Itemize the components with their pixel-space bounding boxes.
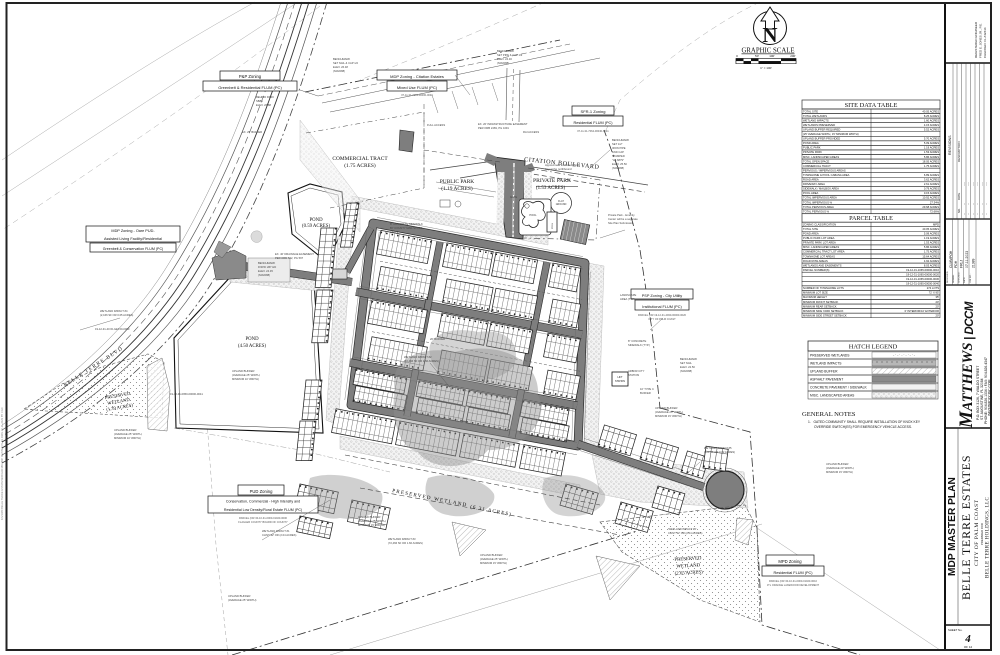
svg-text:19-12-31-40 ID-GET20-0000: 19-12-31-40 ID-GET20-0000 <box>95 327 130 331</box>
svg-text:PARCEL (OR 30-10-31-0000-01020: PARCEL (OR 30-10-31-0000-01020-0000 <box>239 516 288 520</box>
svg-text:--: -- <box>975 203 979 205</box>
svg-text:1.19 ACRES: 1.19 ACRES <box>924 236 939 240</box>
svg-text:JTL ORANGE LAKEWOOD DEVELOPMEN: JTL ORANGE LAKEWOOD DEVELOPMENT <box>767 583 820 587</box>
svg-text:PUD Zoning: PUD Zoning <box>250 489 273 494</box>
svg-text:15.64 ACRES: 15.64 ACRES <box>922 254 939 258</box>
svg-text:(NAVD88): (NAVD88) <box>497 61 509 65</box>
svg-text:Residential FLUM (PC): Residential FLUM (PC) <box>773 571 813 575</box>
svg-text:DESIGNED:: DESIGNED: <box>947 271 949 283</box>
svg-text:Center will be a separate: Center will be a separate <box>608 217 638 221</box>
svg-text:(AVERAGE 25' WIDTH,: (AVERAGE 25' WIDTH, <box>358 519 386 523</box>
svg-text:(4.50 ACRES): (4.50 ACRES) <box>238 344 266 349</box>
svg-text:--: -- <box>962 213 966 215</box>
svg-text:SHEET No.: SHEET No. <box>948 628 963 632</box>
svg-text:ELEV. 25.50: ELEV. 25.50 <box>612 162 627 166</box>
svg-text:0' INTERIOR/10' EXTERIOR: 0' INTERIOR/10' EXTERIOR <box>905 309 939 313</box>
svg-text:DATE:: DATE: <box>963 276 966 283</box>
svg-text:8" CONCRETE SIDEWALK: 8" CONCRETE SIDEWALK <box>390 222 423 226</box>
svg-text:PARCEL TABLE: PARCEL TABLE <box>849 215 893 222</box>
svg-text:19-12-31-1065-00000-0020: 19-12-31-1065-00000-0020 <box>906 272 939 276</box>
svg-text:5.70 ACRES: 5.70 ACRES <box>924 137 939 141</box>
svg-text:MINIMUM 15' WIDTH): MINIMUM 15' WIDTH) <box>480 561 507 565</box>
svg-text:50': 50' <box>755 54 759 58</box>
svg-text:ELEV. 26.88: ELEV. 26.88 <box>256 103 271 107</box>
svg-text:ELEV. 24.46: ELEV. 24.46 <box>497 57 512 61</box>
svg-text:TOTAL IMPERVIOUS %: TOTAL IMPERVIOUS % <box>803 200 833 204</box>
svg-text:200': 200' <box>790 54 796 58</box>
svg-text:5.09 ACRES: 5.09 ACRES <box>924 232 939 236</box>
svg-text:21389: 21389 <box>972 258 976 268</box>
svg-text:(NAVD88): (NAVD88) <box>333 69 345 73</box>
svg-text:TOTAL WETLANDS: TOTAL WETLANDS <box>803 114 827 118</box>
svg-text:0.79 ACRES: 0.79 ACRES <box>924 187 939 191</box>
svg-text:LIFT: LIFT <box>618 376 623 379</box>
svg-text:(AVERAGE 20' WIDTH,: (AVERAGE 20' WIDTH, <box>826 466 854 470</box>
svg-text:1.53 ACRES: 1.53 ACRES <box>924 241 939 245</box>
svg-text:SITE DATA TABLE: SITE DATA TABLE <box>845 102 898 109</box>
svg-text:PDH: PDH <box>954 260 958 268</box>
svg-text:AREA (TYP.): AREA (TYP.) <box>620 297 635 301</box>
svg-text:6.89 ACRES: 6.89 ACRES <box>924 173 939 177</box>
svg-text:Approximate location of Knox: Approximate location of Knox <box>545 163 581 167</box>
svg-text:MINIMUM 15' WIDTH): MINIMUM 15' WIDTH) <box>826 470 853 474</box>
svg-text:MINIMUM SIDE YARD SETBACK: MINIMUM SIDE YARD SETBACK <box>803 309 844 313</box>
svg-text:--: -- <box>980 203 984 205</box>
svg-text:18.05 ACRES: 18.05 ACRES <box>922 159 939 163</box>
svg-text:BELLE TERRE ESTATES: BELLE TERRE ESTATES <box>959 455 973 600</box>
svg-text:RAI ACCESS: RAI ACCESS <box>523 130 539 134</box>
svg-text:1.75 ACRES: 1.75 ACRES <box>924 250 939 254</box>
svg-text:(2,166 SF OR 0.05 ACRES): (2,166 SF OR 0.05 ACRES) <box>100 313 133 317</box>
svg-text:07-11-31-7064-00040-0041: 07-11-31-7064-00040-0041 <box>577 129 609 133</box>
svg-text:PUBLIC PARK: PUBLIC PARK <box>440 179 475 185</box>
svg-text:1.19 ACRES: 1.19 ACRES <box>924 146 939 150</box>
svg-text:----: ---- <box>984 182 988 186</box>
svg-text:Residential FLUM (PC): Residential FLUM (PC) <box>573 121 613 125</box>
svg-text:EX. 25' BUFFER: EX. 25' BUFFER <box>242 130 262 134</box>
svg-text:OVERRIDE SWITCH(ES) FOR EMERGE: OVERRIDE SWITCH(ES) FOR EMERGENCY VEHICL… <box>814 425 912 429</box>
svg-text:BELLE TERRE HOLDINGS, LLC: BELLE TERRE HOLDINGS, LLC <box>986 496 991 578</box>
svg-text:Site Plan Submission: Site Plan Submission <box>608 221 634 225</box>
svg-text:----: ---- <box>966 182 970 186</box>
svg-text:UPLAND BUFFER: UPLAND BUFFER <box>826 462 848 466</box>
svg-text:BENCHMARK: BENCHMARK <box>333 57 350 61</box>
svg-text:0.15 ACRES: 0.15 ACRES <box>924 191 939 195</box>
svg-text:PUBLIC PARK: PUBLIC PARK <box>803 146 821 150</box>
svg-text:40.05 ACRES: 40.05 ACRES <box>922 109 939 113</box>
svg-text:----: ---- <box>980 182 984 186</box>
svg-text:"LB 6879": "LB 6879" <box>612 158 624 162</box>
svg-text:UPLAND BUFFER: UPLAND BUFFER <box>655 406 677 410</box>
svg-text:TOTAL OPEN SPACE: TOTAL OPEN SPACE <box>803 159 830 163</box>
svg-text:5.86 ACRES: 5.86 ACRES <box>924 155 939 159</box>
svg-text:--: -- <box>971 203 975 205</box>
svg-text:UNITS: UNITS <box>390 230 398 234</box>
svg-text:07-11-2023: 07-11-2023 <box>965 251 969 268</box>
svg-text:1" = 100': 1" = 100' <box>760 66 772 70</box>
svg-text:5.86 ACRES: 5.86 ACRES <box>924 245 939 249</box>
svg-text:FRED E. JONES JR., P.E.: FRED E. JONES JR., P.E. <box>979 23 983 58</box>
svg-text:--: -- <box>966 203 970 205</box>
svg-text:TOTAL PERVIOUS AREA: TOTAL PERVIOUS AREA <box>803 205 834 209</box>
svg-text:ARBOR CITY: ARBOR CITY <box>628 369 645 373</box>
svg-text:100': 100' <box>769 54 775 58</box>
svg-text:LANDSCAPE: LANDSCAPE <box>620 293 636 297</box>
svg-text:PREPARED FOR: PREPARED FOR <box>980 523 984 545</box>
svg-text:BENCHMARK: BENCHMARK <box>258 261 275 265</box>
svg-text:'WETLAND IMPACT #6': 'WETLAND IMPACT #6' <box>668 527 697 531</box>
svg-text:--: -- <box>980 213 984 215</box>
svg-text:--: -- <box>984 213 988 215</box>
svg-text:(AVERAGE 25' WIDTH): (AVERAGE 25' WIDTH) <box>228 598 256 602</box>
svg-text:(AVERAGE 25' WIDTH,: (AVERAGE 25' WIDTH, <box>232 373 260 377</box>
svg-text:DRIVEWAY AREA: DRIVEWAY AREA <box>803 182 825 186</box>
svg-text:TOTAL PERVIOUS %: TOTAL PERVIOUS % <box>803 209 830 213</box>
svg-text:TOTAL IMPERVIOUS AREA: TOTAL IMPERVIOUS AREA <box>803 196 837 200</box>
svg-text:MINIMUM 10' WIDTH): MINIMUM 10' WIDTH) <box>232 377 259 381</box>
svg-text:EX. 40' DRAINAGE EASEMENT: EX. 40' DRAINAGE EASEMENT <box>275 252 314 256</box>
svg-text:MINIMUM FRONT SETBACK: MINIMUM FRONT SETBACK <box>803 300 839 304</box>
svg-text:4.15 ACRES: 4.15 ACRES <box>924 123 939 127</box>
svg-text:HATCH LEGEND: HATCH LEGEND <box>849 344 898 351</box>
svg-text:MAXIMUM HEIGHT: MAXIMUM HEIGHT <box>803 295 827 299</box>
svg-text:WETLAND IMPACT #4: WETLAND IMPACT #4 <box>100 309 128 313</box>
svg-text:GROUND: GROUND <box>556 203 567 206</box>
svg-text:MINIMUM 15' WIDTH): MINIMUM 15' WIDTH) <box>358 523 385 527</box>
svg-text:MINIMUM 10' WIDTH): MINIMUM 10' WIDTH) <box>114 436 141 440</box>
svg-text:CLINT 32' OR (2.04 ACRES): CLINT 32' OR (2.04 ACRES) <box>262 533 296 537</box>
svg-text:GENERAL NOTES: GENERAL NOTES <box>802 411 856 418</box>
svg-text:MATTHEWS: MATTHEWS <box>956 343 977 429</box>
svg-text:POND AREA: POND AREA <box>803 141 819 145</box>
svg-text:GATE: GATE <box>510 195 517 199</box>
svg-text:20': 20' <box>935 300 939 304</box>
svg-text:WETLAND IMPACT #3: WETLAND IMPACT #3 <box>388 537 416 541</box>
svg-text:STAMPED: STAMPED <box>612 154 625 158</box>
svg-text:BENCHMARK: BENCHMARK <box>497 49 514 53</box>
svg-text:PRIVATE PARK: PRIVATE PARK <box>533 178 571 184</box>
svg-text:Private Park - Amenity: Private Park - Amenity <box>608 213 635 217</box>
svg-text:EX. 20' INFRASTRUCTURE EASEMEN: EX. 20' INFRASTRUCTURE EASEMENT <box>478 122 528 126</box>
svg-text:4: 4 <box>964 633 971 645</box>
svg-text:3.62 ACRES: 3.62 ACRES <box>924 178 939 182</box>
svg-text:20' BUFFER: 20' BUFFER <box>430 337 445 341</box>
svg-text:NO.: NO. <box>957 208 961 213</box>
svg-text:PRIVATE PARK: PRIVATE PARK <box>803 150 822 154</box>
svg-text:Greenbelt & Conservation FLUM: Greenbelt & Conservation FLUM (PC) <box>103 247 164 251</box>
svg-text:Assisted Living Facility/Resid: Assisted Living Facility/Residential <box>104 237 162 241</box>
svg-text:CLMMPOH: CLMMPOH <box>949 250 953 268</box>
svg-text:WETLAND IMPACTS: WETLAND IMPACTS <box>810 361 842 365</box>
svg-text:DESCRIPTION: DESCRIPTION <box>957 141 961 162</box>
svg-text:1.60 ACRES: 1.60 ACRES <box>924 118 939 122</box>
svg-text:40.05 ACRES: 40.05 ACRES <box>922 227 939 231</box>
svg-text:72.66%: 72.66% <box>930 209 940 213</box>
svg-text:BEHIND PARK: BEHIND PARK <box>256 95 274 99</box>
svg-text:POOL AREA: POOL AREA <box>803 191 818 195</box>
svg-text:ROAD AREA: ROAD AREA <box>803 178 819 182</box>
svg-text:| DCCM: | DCCM <box>964 301 976 340</box>
svg-text:--: -- <box>966 213 970 215</box>
svg-text:DATE: DATE <box>957 193 961 200</box>
svg-text:PERVIOUS / IMPERVIOUS AREAS: PERVIOUS / IMPERVIOUS AREAS <box>803 168 846 172</box>
svg-text:WETLAND IMPACT #2: WETLAND IMPACT #2 <box>404 355 432 359</box>
svg-text:(720 SF OR 0.02 ACRES): (720 SF OR 0.02 ACRES) <box>704 450 735 454</box>
svg-text:20': 20' <box>935 304 939 308</box>
svg-text:ZONING CLASSIFICATION: ZONING CLASSIFICATION <box>803 222 836 226</box>
svg-text:(72,466 SF OR 1.66 ACRES): (72,466 SF OR 1.66 ACRES) <box>404 359 439 363</box>
svg-text:72' X 95': 72' X 95' <box>929 291 940 295</box>
svg-text:WETLANDS AND EASEMENTS: WETLANDS AND EASEMENTS <box>803 263 842 267</box>
svg-text:(NAVD88): (NAVD88) <box>258 273 270 277</box>
svg-text:----: ---- <box>962 182 966 186</box>
svg-text:TOTAL SITE: TOTAL SITE <box>803 109 818 113</box>
svg-text:- · - · - · - · - · -: - · - · - · - · - · - <box>893 353 915 357</box>
svg-text:MISC. LANDSCAPED AREAS: MISC. LANDSCAPED AREAS <box>803 245 839 249</box>
svg-text:TOWNHOME & POOL CABANA AREA: TOWNHOME & POOL CABANA AREA <box>803 173 850 177</box>
svg-text:PARCEL NUMBER(S): PARCEL NUMBER(S) <box>803 268 830 272</box>
svg-text:POND AREA: POND AREA <box>803 232 819 236</box>
svg-text:CHECKED: FL #42614: CHECKED: FL #42614 <box>983 27 987 58</box>
svg-text:07-11-31-7004-00000-0040: 07-11-31-7004-00000-0040 <box>401 93 433 97</box>
svg-text:ELEV. 26.48: ELEV. 26.48 <box>333 65 348 69</box>
svg-text:UPLAND BUFFER: UPLAND BUFFER <box>358 515 380 519</box>
svg-text:19-12-31-1065-00000-0010: 19-12-31-1065-00000-0010 <box>906 268 939 272</box>
svg-text:(NAVD88): (NAVD88) <box>680 369 692 373</box>
svg-text:CLINT 32' OR (2.04 ACRES): CLINT 32' OR (2.04 ACRES) <box>668 531 702 535</box>
svg-text:POOL: POOL <box>529 213 537 217</box>
svg-text:PARCEL (OR 30-10-31-0000-01020: PARCEL (OR 30-10-31-0000-01020-0010 <box>769 579 818 583</box>
svg-text:MDP MASTER PLAN: MDP MASTER PLAN <box>947 477 958 576</box>
svg-text:BENCHMARK: BENCHMARK <box>680 357 697 361</box>
svg-text:P&P Zoning: P&P Zoning <box>239 74 262 79</box>
svg-text:CHECKED:: CHECKED: <box>959 271 961 283</box>
svg-text:----: ---- <box>971 182 975 186</box>
svg-text:SET 1/2": SET 1/2" <box>612 142 623 146</box>
svg-text:AND CAP: AND CAP <box>612 150 624 154</box>
svg-text:10.92 ACRES: 10.92 ACRES <box>922 196 939 200</box>
svg-text:ASPHALT PAVEMENT: ASPHALT PAVEMENT <box>810 377 843 381</box>
svg-text:19-12-31-1065-00000-0030: 19-12-31-1065-00000-0030 <box>906 277 939 281</box>
svg-text:--: -- <box>971 213 975 215</box>
svg-text:----: ---- <box>975 182 979 186</box>
svg-text:4.92 ACRES: 4.92 ACRES <box>924 259 939 263</box>
svg-text:Institutional FLUM (PC): Institutional FLUM (PC) <box>642 305 682 309</box>
svg-text:(AVERAGE 25' WIDTH,: (AVERAGE 25' WIDTH, <box>114 432 142 436</box>
svg-text:5.52 ACRES: 5.52 ACRES <box>924 127 939 131</box>
svg-text:DRAWN:: DRAWN: <box>952 274 955 283</box>
svg-text:PER ORB 2469, PG 1091: PER ORB 2469, PG 1091 <box>478 126 509 130</box>
svg-text:SFR-1 Zoning: SFR-1 Zoning <box>581 109 606 114</box>
svg-text:IRON PIPE: IRON PIPE <box>612 146 626 150</box>
svg-text:ELEV. 22.50: ELEV. 22.50 <box>680 365 695 369</box>
svg-text:MDP Zoning - Citation Estates: MDP Zoning - Citation Estates <box>390 74 444 79</box>
svg-text:Mixed Use FLUM (PC): Mixed Use FLUM (PC) <box>397 85 438 90</box>
svg-text:STATION: STATION <box>628 373 639 377</box>
svg-text:FND'D LB7 HD: FND'D LB7 HD <box>258 265 276 269</box>
svg-text:NUMBER OF TOWNHOME LOTS: NUMBER OF TOWNHOME LOTS <box>803 286 844 290</box>
svg-text:Conservation, Commercial - Hig: Conservation, Commercial - High Intensit… <box>226 500 300 504</box>
svg-text:FLAGLER COUNTY BOARD OF COUNTY: FLAGLER COUNTY BOARD OF COUNTY <box>238 520 288 524</box>
svg-text:MINIMUM LOT SIZE: MINIMUM LOT SIZE <box>803 291 828 295</box>
svg-text:Key at the northbound: Key at the northbound <box>545 167 572 171</box>
svg-text:Greenbelt & Residential FLUM (: Greenbelt & Residential FLUM (PC) <box>218 85 282 90</box>
svg-text:ROAD ROW AREAS: ROAD ROW AREAS <box>803 259 828 263</box>
svg-text:19-12-31-1065-00000-0040: 19-12-31-1065-00000-0040 <box>906 282 939 286</box>
svg-text:TOTAL SITE: TOTAL SITE <box>803 227 818 231</box>
svg-text:PRESERVED WETLANDS: PRESERVED WETLANDS <box>810 353 850 357</box>
svg-text:POND: POND <box>309 218 323 223</box>
svg-text:10' TYPE C: 10' TYPE C <box>640 387 654 391</box>
svg-text:ELEV. 24.45: ELEV. 24.45 <box>258 269 273 273</box>
svg-text:COMMERCIAL TRACT: COMMERCIAL TRACT <box>332 156 388 162</box>
svg-text:TOWNHOME LOT AREAS: TOWNHOME LOT AREAS <box>803 254 835 258</box>
svg-text:8.03 ACRES: 8.03 ACRES <box>924 263 939 267</box>
svg-text:PRIVATE PARK LOT AREA: PRIVATE PARK LOT AREA <box>803 241 836 245</box>
svg-text:20': 20' <box>935 313 939 317</box>
svg-text:WETLAND IMPACT #1: WETLAND IMPACT #1 <box>262 529 290 533</box>
svg-text:SET NAIL: SET NAIL <box>680 361 692 365</box>
svg-text:UPLAND BUFFER: UPLAND BUFFER <box>232 369 254 373</box>
svg-text:UPLAND BUFFER PROVIDED: UPLAND BUFFER PROVIDED <box>803 137 840 141</box>
svg-text:SET PIPE & CAP 1/2: SET PIPE & CAP 1/2 <box>497 53 523 57</box>
svg-text:N: N <box>762 23 777 47</box>
svg-text:WETLANDS PRESERVED: WETLANDS PRESERVED <box>803 123 835 127</box>
svg-text:UPLAND BUFFER: UPLAND BUFFER <box>480 553 502 557</box>
svg-text:PSP Zoning - City Utility: PSP Zoning - City Utility <box>642 294 683 298</box>
svg-text:5.09 ACRES: 5.09 ACRES <box>924 141 939 145</box>
svg-text:(AVERAGE 25' WIDTH,: (AVERAGE 25' WIDTH, <box>480 557 508 561</box>
svg-text:REGISTERED ENGINEER: REGISTERED ENGINEER <box>974 21 978 58</box>
svg-text:MINIMUM 15' WIDTH): MINIMUM 15' WIDTH) <box>655 414 682 418</box>
svg-text:--: -- <box>962 203 966 205</box>
svg-text:CONCRETE PAVEMENT / SIDEWALK: CONCRETE PAVEMENT / SIDEWALK <box>810 385 867 389</box>
svg-text:--: -- <box>975 213 979 215</box>
svg-text:WETLAND IMPACTS: WETLAND IMPACTS <box>803 118 829 122</box>
svg-text:COMMERCIAL TRACT: COMMERCIAL TRACT <box>803 164 831 168</box>
svg-text:FRLJ: FRLJ <box>960 260 964 268</box>
svg-text:(NAVD88): (NAVD88) <box>612 166 624 170</box>
svg-text:BY COUNTY MAIL STORE: BY COUNTY MAIL STORE <box>390 226 423 230</box>
svg-text:35': 35' <box>935 295 939 299</box>
svg-text:19-12-31-0950-00000-0041: 19-12-31-0950-00000-0041 <box>170 392 203 396</box>
svg-text:MPD: MPD <box>933 222 939 226</box>
svg-text:MISC. LANDSCAPED AREAS: MISC. LANDSCAPED AREAS <box>803 155 839 159</box>
svg-text:STATION: STATION <box>615 380 625 383</box>
svg-text:27.34%: 27.34% <box>930 200 940 204</box>
svg-text:PER ORD 542, PG 597: PER ORD 542, PG 597 <box>275 256 304 260</box>
svg-text:FULL ACCESS: FULL ACCESS <box>427 123 445 127</box>
svg-text:8.25 ACRES: 8.25 ACRES <box>924 114 939 118</box>
svg-text:1.75 ACRES: 1.75 ACRES <box>924 164 939 168</box>
svg-text:SIDEWALK (TYP.): SIDEWALK (TYP.) <box>628 343 650 347</box>
svg-text:(AVERAGE 25' WIDTH,: (AVERAGE 25' WIDTH, <box>655 410 683 414</box>
svg-text:(72,466 SF OR 1.66 ACRES): (72,466 SF OR 1.66 ACRES) <box>388 541 423 545</box>
svg-text:JOB NO.:: JOB NO.: <box>970 273 972 283</box>
svg-text:8" CONCRETE: 8" CONCRETE <box>628 339 646 343</box>
svg-text:UPLAND BUFFER: UPLAND BUFFER <box>114 428 136 432</box>
svg-text:BENCHMARK: BENCHMARK <box>612 138 629 142</box>
svg-text:29.68 ACRES: 29.68 ACRES <box>922 205 939 209</box>
svg-text:MPD Zoning: MPD Zoning <box>778 559 802 564</box>
svg-text:1.53 ACRES: 1.53 ACRES <box>924 150 939 154</box>
svg-text:BUFFER: BUFFER <box>640 391 651 395</box>
svg-text:SB84: SB84 <box>256 99 263 103</box>
svg-text:WETLAND IMPACT #5: WETLAND IMPACT #5 <box>704 446 732 450</box>
svg-text:--: -- <box>984 203 988 205</box>
svg-text:(25' AVERAGE WIDTH, 15' MINIMU: (25' AVERAGE WIDTH, 15' MINIMUM WIDTH) <box>803 132 859 136</box>
svg-text:POND: POND <box>245 337 259 342</box>
svg-text:UPLAND BUFFER: UPLAND BUFFER <box>228 594 250 598</box>
svg-text:COMMERCIAL TRACT LOT AREA: COMMERCIAL TRACT LOT AREA <box>803 250 845 254</box>
svg-text:MISC. LANDSCAPED AREAS: MISC. LANDSCAPED AREAS <box>810 393 855 397</box>
svg-text:PUBLIC PARK LOT AREA: PUBLIC PARK LOT AREA <box>803 236 835 240</box>
svg-text:MINIMUM SIDE STREET SETBACK: MINIMUM SIDE STREET SETBACK <box>803 313 847 317</box>
svg-text:UPLAND BUFFER: UPLAND BUFFER <box>810 369 838 373</box>
svg-text:REVISIONS: REVISIONS <box>948 135 952 155</box>
svg-text:OF 12: OF 12 <box>964 645 973 649</box>
svg-text:UPLAND BUFFER REQUIRED: UPLAND BUFFER REQUIRED <box>803 127 840 131</box>
svg-text:Residential Low Density/Rural: Residential Low Density/Rural Estate FLU… <box>224 508 302 512</box>
svg-text:274 LOTS: 274 LOTS <box>927 286 939 290</box>
svg-text:PARCEL (OR 19-12-31-4930-00000: PARCEL (OR 19-12-31-4930-00000-0020 <box>638 313 687 317</box>
svg-text:SET NAIL & CAP 1/2: SET NAIL & CAP 1/2 <box>333 61 359 65</box>
svg-text:(1.75 ACRES): (1.75 ACRES) <box>344 162 376 169</box>
svg-text:POOL: POOL <box>552 222 554 229</box>
svg-text:2.61 ACRES: 2.61 ACRES <box>924 182 939 186</box>
svg-text:1. GATED COMMUNITY SHALL REQ: 1. GATED COMMUNITY SHALL REQUIRE INSTALL… <box>808 420 921 424</box>
svg-text:MINIMUM REAR SETBACK: MINIMUM REAR SETBACK <box>803 304 837 308</box>
svg-text:GRAPHIC SCALE: GRAPHIC SCALE <box>741 48 794 55</box>
svg-text:SIDEWALK / MAILBOX AREA: SIDEWALK / MAILBOX AREA <box>803 187 839 191</box>
svg-text:MDP Zoning - Oare PUD-: MDP Zoning - Oare PUD- <box>111 229 155 233</box>
